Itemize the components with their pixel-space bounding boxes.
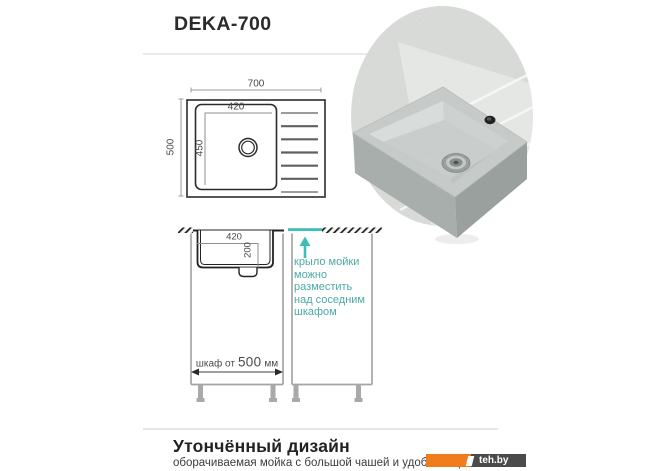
countertop-hatch-right — [322, 228, 382, 234]
dim-label-200: 200 — [243, 242, 254, 258]
dim-label-450: 450 — [195, 140, 206, 157]
cabinet-legs — [197, 385, 363, 403]
drain-strainer — [442, 154, 470, 173]
watermark-orange-block — [426, 454, 471, 467]
watermark: teh.by — [426, 454, 526, 467]
cabinet-size-label: шкаф от 500 мм — [196, 355, 278, 370]
wing-note-line: разместить — [294, 281, 365, 294]
wing-note-line: крыло мойки — [294, 256, 365, 269]
dim-label-420-side: 420 — [226, 232, 242, 243]
wing-note-line: можно — [294, 269, 365, 282]
dim-label-500: 500 — [166, 139, 177, 156]
dim-label-420-top: 420 — [228, 102, 245, 113]
cabinet-label-suffix: мм — [264, 359, 278, 370]
drain-trap — [239, 268, 257, 277]
granite-photo — [351, 6, 545, 244]
product-card: DEKA-700 700 500 420 450 420 200 шкаф от… — [0, 0, 670, 471]
wing-highlight-bar — [288, 228, 322, 231]
scene-graphics — [0, 0, 670, 471]
page-title: DEKA-700 — [174, 13, 271, 36]
wing-note-line: шкафом — [294, 306, 365, 319]
up-arrow-icon — [300, 237, 311, 259]
bowl-outline-top — [196, 105, 277, 190]
cabinet-label-prefix: шкаф от — [196, 359, 235, 370]
wing-note-line: над соседним — [294, 294, 365, 307]
dim-label-700: 700 — [248, 79, 265, 90]
cabinet-label-value: 500 — [238, 355, 261, 370]
faucet-hole — [485, 116, 496, 124]
countertop-hatch-left — [178, 228, 193, 234]
watermark-label: teh.by — [471, 454, 526, 467]
feature-heading: Утончённый дизайн — [173, 436, 350, 457]
cabinet-width-dimension — [191, 369, 283, 376]
wing-note: крыло мойки можно разместить над соседни… — [294, 256, 365, 319]
